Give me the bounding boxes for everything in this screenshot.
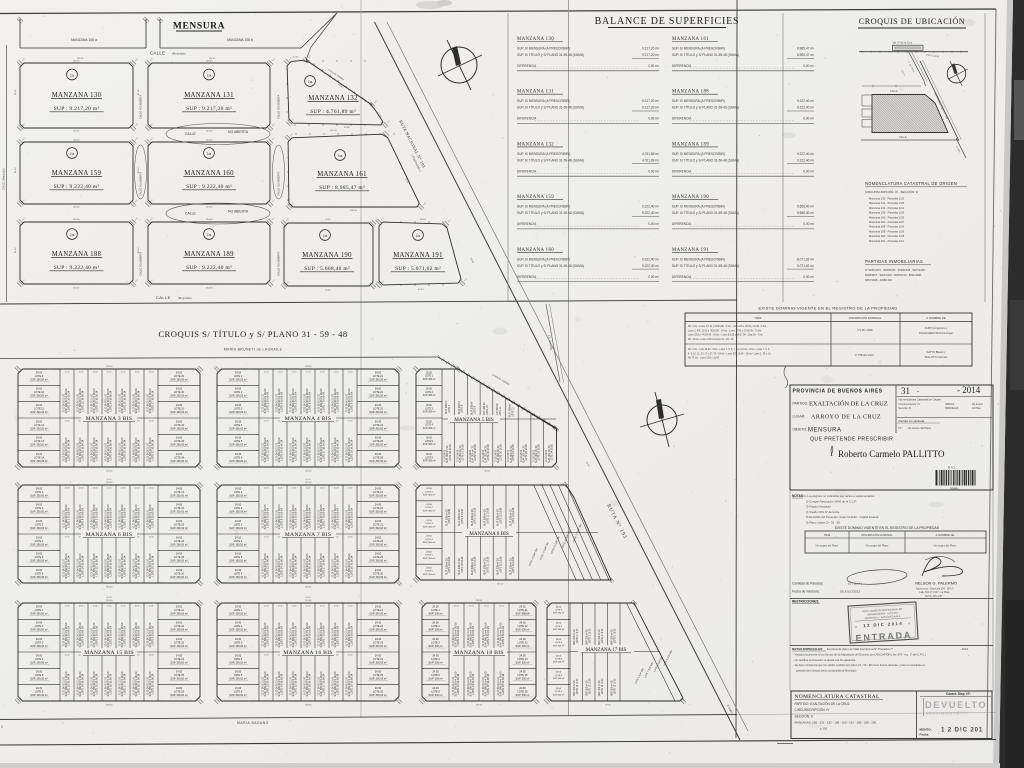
svg-text:9.222,40 m²: 9.222,40 m² [642,257,659,261]
svg-text:CIRCUNSCRIPCIÓN: IV: CIRCUNSCRIPCIÓN: IV [795,707,831,712]
svg-text:SUP. 300,00 m²: SUP. 300,00 m² [369,661,387,664]
svg-text:2) Cumple Resolución 14/90 de: 2) Cumple Resolución 14/90 de la C.C.P. [806,499,857,503]
svg-text:12.00: 12.00 [149,371,154,373]
svg-text:SUP. S/ TÍTULO y S/ PLANO 31-: SUP. S/ TÍTULO y S/ PLANO 31-59-48 (SUMA… [672,106,739,110]
svg-text:SUP 300 m² 20: SUP 300 m² 20 [573,629,576,645]
svg-text:Manzana 190 - Parcelas 1/1: Manzana 190 - Parcelas 1/18 [869,234,905,238]
svg-text:20.00: 20.00 [426,536,432,538]
svg-text:85.06: 85.06 [138,247,140,253]
svg-text:SUP : 9.222,40 m²: SUP : 9.222,40 m² [186,184,232,190]
svg-text:CALLE: CALLE [890,90,898,93]
svg-text:LOTE 11: LOTE 11 [499,406,502,416]
svg-text:SUP. 300,00 m²: SUP. 300,00 m² [30,576,48,579]
svg-text:- Se deja constancia que los s: - Se deja constancia que los saldos cedi… [793,663,925,667]
svg-text:12.00: 12.00 [292,605,297,607]
svg-text:LOTE 1: LOTE 1 [425,376,434,378]
svg-text:124.00: 124.00 [206,288,213,290]
svg-text:LOTE 14 10.00 24: LOTE 14 10.00 24 [279,555,283,576]
svg-text:Lotes 2, 8/9, 12/19 y 74/26: Lotes 2, 8/9, 12/19 y 74/26,98 - 16 bis … [688,329,763,332]
svg-text:SUP. S/ TÍTULO y S/ PLANO 31-: SUP. S/ TÍTULO y S/ PLANO 31-59-48 (SUMA… [672,264,739,268]
svg-text:CROQUIS S/ TÍTULO y S/ PLAN: CROQUIS S/ TÍTULO y S/ PLANO 31 - 59 - 4… [158,329,347,339]
svg-text:LOTE 4 10.00 24: LOTE 4 10.00 24 [279,508,283,528]
svg-text:LOTE 2 10.00: LOTE 2 10.00 [577,628,579,643]
svg-text:5.668,40 m²: 5.668,40 m² [797,211,814,215]
svg-text:LOTE 22 10.00: LOTE 22 10.00 [525,443,528,461]
svg-text:LOTE 21 10.00: LOTE 21 10.00 [512,443,515,461]
svg-text:SUP. 300,00 m²: SUP. 300,00 m² [170,612,188,615]
svg-text:F°138 / 1938: F°138 / 1938 [858,328,873,332]
svg-text:9.222,40 m²: 9.222,40 m² [797,152,814,156]
svg-text:LOTE 25 10.00 24: LOTE 25 10.00 24 [122,439,126,460]
svg-text:5.071,62 m²: 5.071,62 m² [797,257,814,261]
svg-text:DIFERENCIA: DIFERENCIA [517,222,537,226]
svg-text:SUP. 300,00 m²: SUP. 300,00 m² [170,661,188,664]
svg-text:Lotes 2/18 y 74/1/9,49 - 16: Lotes 2/18 y 74/1/9,49 - 16 bis - Lotes … [688,334,763,337]
svg-text:0,00 m²: 0,00 m² [648,275,659,279]
svg-text:DIFERENCIA: DIFERENCIA [672,169,692,173]
svg-text:12.00: 12.00 [149,654,154,656]
svg-text:128.00: 128.00 [106,470,113,472]
svg-text:My 76 bis - Lotes 21/5 y 1: My 76 bis - Lotes 21/5 y 11/14. [688,357,720,360]
svg-text:SUP 300 m² 20: SUP 300 m² 20 [611,629,614,645]
svg-text:SUP. 300,00 m²: SUP. 300,00 m² [229,494,247,497]
svg-text:LOTE 19 10.00: LOTE 19 10.00 [461,556,464,573]
svg-text:SUP. 300,00 m²: SUP. 300,00 m² [30,629,48,632]
svg-text:SUP. 300,00 m²: SUP. 300,00 m² [369,427,387,430]
svg-text:LOTE 7 10.00 24: LOTE 7 10.00 24 [321,392,325,412]
svg-text:EXISTE DOMINIO VIGENTE EN EL R: EXISTE DOMINIO VIGENTE EN EL REGISTRO DE… [835,526,940,530]
svg-text:LOTE 22 10.00: LOTE 22 10.00 [499,556,502,573]
svg-text:OBJETO:: OBJETO: [793,428,808,432]
svg-text:12.00: 12.00 [107,371,112,373]
svg-text:SUP. S/ MENSURA (A PRESCRIBIR: SUP. S/ MENSURA (A PRESCRIBIR) [672,205,725,209]
svg-text:LOTE 19 10.00 24: LOTE 19 10.00 24 [150,555,154,576]
svg-text:8.985,47 m²: 8.985,47 m² [797,47,814,51]
svg-text:LOTE 16 10.00 24: LOTE 16 10.00 24 [307,673,311,694]
svg-text:SUP 300 m²: SUP 300 m² [553,693,565,696]
svg-text:No surgen del Plano: No surgen del Plano [934,545,957,548]
svg-text:LOTE 5 10.00 24: LOTE 5 10.00 24 [293,626,297,646]
svg-text:20.00: 20.00 [426,504,432,506]
svg-text:SECCIÓN: D: SECCIÓN: D [795,713,814,718]
svg-text:12.00: 12.00 [334,371,339,373]
svg-text:20.00: 20.00 [556,639,562,641]
svg-text:LOTE 14 10.00 24: LOTE 14 10.00 24 [471,673,475,694]
svg-text:12.00: 12.00 [264,371,269,373]
svg-text:Agrimensor / Matrícula 104: Agrimensor / Matrícula 104 - CPA V [916,588,954,591]
svg-text:20.00: 20.00 [426,567,432,569]
svg-text:LOTE 16 10.00 24: LOTE 16 10.00 24 [108,673,112,694]
svg-text:12.00: 12.00 [93,371,98,373]
svg-text:LOTE 23 10.00: LOTE 23 10.00 [538,443,541,461]
svg-text:9.222,40 m²: 9.222,40 m² [642,205,659,209]
svg-text:El presente plano se halla ins: El presente plano se halla inscripto al … [827,647,893,651]
svg-text:LOTE 8 10.00 24: LOTE 8 10.00 24 [136,508,140,528]
svg-text:LOTE 15 10.00 24: LOTE 15 10.00 24 [94,673,98,694]
svg-text:DIFERENCIA: DIFERENCIA [517,169,537,173]
svg-text:12.00: 12.00 [334,605,339,607]
svg-text:9.217,20 m²: 9.217,20 m² [642,99,659,103]
svg-text:A NOMBRE DE: A NOMBRE DE [926,316,946,320]
svg-text:PANACHERO ROCCA Ángel: PANACHERO ROCCA Ángel [919,331,953,335]
svg-text:MANZANA 17 BIS: MANZANA 17 BIS [586,648,627,653]
svg-text:LOTE 19 10.00: LOTE 19 10.00 [487,443,490,461]
svg-text:MANZANA 131: MANZANA 131 [184,92,234,99]
svg-text:CALLE NO ABIERTA: CALLE NO ABIERTA [139,94,143,119]
svg-text:12.00: 12.00 [149,420,154,422]
svg-text:1a: 1a [416,233,421,238]
svg-text:124.00: 124.00 [206,61,213,63]
svg-text:124.00: 124.00 [206,219,213,221]
svg-text:124.00: 124.00 [73,61,80,63]
svg-text:LOTE 3 10.00 24: LOTE 3 10.00 24 [265,626,269,646]
svg-text:Fecha de mensura:: Fecha de mensura: [792,590,820,594]
svg-text:12.00: 12.00 [499,605,504,607]
svg-text:SUP. S/ MENSURA (A PRESCRIBIR: SUP. S/ MENSURA (A PRESCRIBIR) [517,257,570,261]
svg-text:LOTE 1: LOTE 1 [555,610,563,612]
svg-text:Manzana 161 - Parcelas 1/2: Manzana 161 - Parcelas 1/27 [869,220,905,224]
svg-text:PARTIDO:: PARTIDO: [793,402,809,406]
svg-text:SUP. S/ TÍTULO y S/ PLANO 31-: SUP. S/ TÍTULO y S/ PLANO 31-59-48 (SUMA… [517,211,584,215]
svg-text:12.00: 12.00 [292,487,297,489]
svg-text:8.985,47 m²: 8.985,47 m² [797,53,814,57]
svg-text:LOTE 13 10.00 24: LOTE 13 10.00 24 [265,439,269,460]
svg-text:4) Visado CPA N° de: 4) Visado CPA N° de fecha [806,510,840,514]
svg-text:SUP : 5.071,62 m²: SUP : 5.071,62 m² [395,266,441,272]
svg-text:LOTE 15 10.00 24: LOTE 15 10.00 24 [94,555,98,576]
svg-text:20.00: 20.00 [106,597,112,599]
svg-text:EXISTE DOMINIO VIGENTE EN: EXISTE DOMINIO VIGENTE EN EL REGISTRO DE… [758,306,897,311]
svg-text:SUP. 300,00 m²: SUP. 300,00 m² [369,444,387,447]
svg-text:LOTE 13 10.00 24: LOTE 13 10.00 24 [265,673,269,694]
svg-text:20.00: 20.00 [556,688,562,690]
svg-text:LOTE 20 10.00: LOTE 20 10.00 [474,556,477,573]
svg-text:LOTE 3 10.00 24: LOTE 3 10.00 24 [265,508,269,528]
svg-text:SUP. S/ TÍTULO y S/ PLANO 31-: SUP. S/ TÍTULO y S/ PLANO 31-59-48 (SUMA… [517,264,584,268]
svg-text:SUP. 300,00 m²: SUP. 300,00 m² [229,460,247,463]
svg-text:SUP. 300,00 m²: SUP. 300,00 m² [229,411,247,414]
svg-text:SUP. 300 m²: SUP. 300 m² [429,645,443,648]
svg-text:1a: 1a [207,151,212,156]
svg-text:SUP. 300 m²: SUP. 300 m² [516,661,530,664]
svg-text:LOTE 8 10.00 24: LOTE 8 10.00 24 [335,392,339,412]
svg-text:LOTE 22 10.00 24: LOTE 22 10.00 24 [80,439,84,460]
svg-text:SUP. S/ TÍTULO y S/ PLANO 31-: SUP. S/ TÍTULO y S/ PLANO 31-59-48 (SUMA… [517,158,584,162]
svg-text:Manzana 189 - Parcelas 1/2: Manzana 189 - Parcelas 1/26 [869,229,905,233]
svg-text:SUP. 300,00 m²: SUP. 300,00 m² [30,395,48,398]
svg-text:No surgen del Plano: No surgen del Plano [816,545,839,548]
svg-text:03/JULIO/2013: 03/JULIO/2013 [840,590,861,594]
svg-text:Va anexo: Va anexo [972,402,983,406]
svg-text:SUP. S/ TÍTULO y S/ PLANO 31-: SUP. S/ TÍTULO y S/ PLANO 31-59-48 (SUMA… [672,211,739,215]
svg-text:SUP. S/ TÍTULO y S/ PLANO 31-: SUP. S/ TÍTULO y S/ PLANO 31-59-48 (SUMA… [517,53,584,57]
svg-text:(Mejorada): (Mejorada) [172,51,186,55]
svg-text:0,00 m²: 0,00 m² [803,169,814,173]
svg-text:LOTE 13 10.00: LOTE 13 10.00 [512,507,515,524]
svg-text:SUP. 300,00 m²: SUP. 300,00 m² [30,527,48,530]
svg-text:B 4 2: B 4 2 [948,466,955,470]
svg-text:LOTE 14 10.00 24: LOTE 14 10.00 24 [108,390,112,411]
svg-text:F°708 año 1947.: F°708 año 1947. [855,353,874,357]
svg-text:SUP. 300,00 m²: SUP. 300,00 m² [170,444,188,447]
svg-text:85.06: 85.06 [138,89,140,95]
svg-text:LOTE 15 10.00 24: LOTE 15 10.00 24 [293,673,297,694]
svg-text:LOTE 16 10.00 24: LOTE 16 10.00 24 [108,555,112,576]
svg-text:12.00: 12.00 [135,371,140,373]
svg-text:- 2014: - 2014 [957,385,981,395]
svg-text:1a: 1a [207,232,212,237]
svg-text:0,00 m²: 0,00 m² [648,222,659,226]
svg-text:LUGAR:: LUGAR: [793,415,806,419]
svg-text:10 ( Diez ): 10 ( Diez ) [848,582,862,586]
svg-text:1a: 1a [308,79,313,84]
svg-text:RESTRICCIONES:: RESTRICCIONES: [792,600,819,604]
svg-text:(Mejorada): (Mejorada) [178,296,192,300]
svg-text:NOTAS ESPECIALES:: NOTAS ESPECIALES: [792,647,823,651]
svg-text:Nomenclatura Catastral de Orig: Nomenclatura Catastral de Origen [899,398,942,402]
svg-text:12.00: 12.00 [334,487,339,489]
svg-text:Caract. Disp. N°:: Caract. Disp. N°: [946,692,971,696]
svg-text:LOTE 2: LOTE 2 [555,626,563,628]
svg-text:Manzana 191 - Parcelas 1/1: Manzana 191 - Parcelas 1/11 [869,239,904,243]
svg-text:959841: 959841 [950,487,959,491]
svg-text:LOTE 6: LOTE 6 [425,571,433,573]
svg-text:87.00: 87.00 [605,705,611,707]
svg-text:SUP 300 m²: SUP 300 m² [553,644,565,647]
svg-text:MANZANA 4 BIS: MANZANA 4 BIS [285,416,331,422]
svg-text:Partida Inmobiliaria: Partida Inmobiliaria [899,419,925,423]
svg-text:LOTE 11 10.00: LOTE 11 10.00 [487,507,490,524]
svg-text:4.761,89 m²: 4.761,89 m² [642,158,659,162]
svg-text:12.00: 12.00 [65,420,70,422]
svg-text:Sección: D: Sección: D [899,406,912,410]
svg-text:20.00: 20.00 [305,597,311,599]
svg-text:SUP. 300 m²: SUP. 300 m² [516,694,530,697]
svg-text:Bo. A° de la Cruz: Bo. A° de la Cruz [893,42,913,45]
svg-text:20.00: 20.00 [426,372,432,374]
svg-text:y 191: y 191 [820,726,828,730]
svg-text:MONTO:: MONTO: [920,728,932,732]
svg-text:LOTE 4 10.00 24: LOTE 4 10.00 24 [279,392,283,412]
svg-text:0,00 m²: 0,00 m² [803,222,814,226]
svg-text:LOTE 16 10.00 24: LOTE 16 10.00 24 [307,439,311,460]
svg-text:1a: 1a [70,72,75,77]
svg-text:124.00: 124.00 [73,219,80,221]
svg-text:LOTE 20 10.00: LOTE 20 10.00 [500,443,503,461]
svg-text:128.00: 128.00 [476,704,483,706]
svg-text:12.00: 12.00 [149,536,154,538]
svg-text:LOTE 21 10.00: LOTE 21 10.00 [487,556,490,573]
svg-text:NO ABIERTA: NO ABIERTA [228,210,249,214]
svg-text:CALLE NO ABIERTA: CALLE NO ABIERTA [139,251,143,276]
svg-text:SUP. 300,00 m²: SUP. 300,00 m² [170,427,188,430]
svg-text:SUP. 300,00 m²: SUP. 300,00 m² [229,678,247,681]
svg-text:SUP. 300,00 m²: SUP. 300,00 m² [369,645,387,648]
svg-text:LOTE 16 10.00 24: LOTE 16 10.00 24 [136,390,140,411]
svg-text:SUP : 4.761,89 m²: SUP : 4.761,89 m² [310,109,356,115]
svg-text:12.00: 12.00 [65,654,70,656]
svg-text:0,00 m²: 0,00 m² [648,169,659,173]
svg-text:12.00: 12.00 [107,605,112,607]
svg-text:SUP : 9.217,20 m²: SUP : 9.217,20 m² [54,106,100,112]
svg-text:LOTE 18 10.00: LOTE 18 10.00 [474,443,477,461]
svg-text:12.00: 12.00 [348,487,353,489]
svg-text:CALLE: CALLE [185,132,196,136]
svg-text:(0221) 425-1157: (0221) 425-1157 [925,595,943,598]
svg-text:128.00: 128.00 [106,704,113,706]
svg-text:SUP. S/ TÍTULO y S/ PLANO 31-: SUP. S/ TÍTULO y S/ PLANO 31-59-48 (SUMA… [517,106,584,110]
svg-text:LOTE 4 10.00 24: LOTE 4 10.00 24 [80,626,84,646]
svg-text:LOTE 6: LOTE 6 [425,457,434,459]
svg-text:9.222,40 m²: 9.222,40 m² [642,211,659,215]
svg-text:LOTE 8 10.00: LOTE 8 10.00 [448,508,451,524]
svg-text:SUP. 300,00 m²: SUP. 300,00 m² [369,678,387,681]
svg-text:CALLE: CALLE [150,51,165,56]
svg-text:ITEM: ITEM [824,533,831,537]
svg-text:VARIAS: VARIAS [945,402,955,406]
svg-text:SUP 300 m² 20: SUP 300 m² 20 [586,629,589,645]
svg-text:12.00: 12.00 [121,605,126,607]
svg-text:SUP. 300 m²: SUP. 300 m² [423,427,436,430]
svg-text:12.00: 12.00 [264,536,269,538]
svg-text:LOTE 17 10.00 24: LOTE 17 10.00 24 [321,555,325,576]
svg-text:12.00: 12.00 [135,605,140,607]
svg-text:SUP. 300,00 m²: SUP. 300,00 m² [229,612,247,615]
svg-text:9.222,40 m²: 9.222,40 m² [642,264,659,268]
svg-text:LOTE 23 10.00 24: LOTE 23 10.00 24 [94,439,98,460]
svg-text:128.00: 128.00 [305,482,312,484]
svg-text:LOTE 14 10.00 24: LOTE 14 10.00 24 [279,439,283,460]
svg-text:LOTE 14 10.00: LOTE 14 10.00 [602,678,604,694]
svg-text:SUP. 300 m²: SUP. 300 m² [429,694,443,697]
svg-text:LOTE 5 10.00 24: LOTE 5 10.00 24 [486,626,490,646]
svg-text:SUP : 9.222,40 m²: SUP : 9.222,40 m² [186,265,232,271]
svg-text:Mz. 6 bis - Lote 18,36 - 9 bi: Mz. 6 bis - Lote 18,36 - 9 bis - Lotes 1… [688,348,770,351]
svg-text:SUP. 300,00 m²: SUP. 300,00 m² [369,527,387,530]
svg-text:LOTE 6: LOTE 6 [555,691,563,693]
svg-text:SUP. 300,00 m²: SUP. 300,00 m² [170,411,188,414]
svg-text:20.00: 20.00 [556,672,562,674]
svg-text:20.00: 20.00 [426,389,432,391]
svg-text:6) Plano origen: D - 31 - 38: 6) Plano origen: D - 31 - 38 [806,521,840,525]
svg-text:LOTE 13 10.00 24: LOTE 13 10.00 24 [94,390,98,411]
svg-text:SUP. 300 m²: SUP. 300 m² [423,573,436,576]
svg-text:N°:: N°: [899,426,903,430]
svg-text:SUP. 300,00 m²: SUP. 300,00 m² [30,560,48,563]
svg-text:12.00: 12.00 [278,487,283,489]
svg-text:NOTAS:: NOTAS: [792,494,804,498]
svg-text:SUP. 300,00 m²: SUP. 300,00 m² [170,494,188,497]
svg-text:SUP. S/ MENSURA (A PRESCRIBIR: SUP. S/ MENSURA (A PRESCRIBIR) [517,205,570,209]
svg-text:SUP. 300,00 m²: SUP. 300,00 m² [229,395,247,398]
svg-text:SUP. 300,00 m²: SUP. 300,00 m² [369,511,387,514]
svg-text:20.00: 20.00 [556,623,562,625]
svg-text:DIFERENCIA: DIFERENCIA [517,64,537,68]
svg-text:31: 31 [901,386,910,396]
svg-text:LOTE 17 10.00: LOTE 17 10.00 [461,443,464,461]
svg-text:124.00: 124.00 [206,140,213,142]
svg-text:12.00: 12.00 [306,487,311,489]
svg-text:128.00: 128.00 [106,586,113,588]
svg-text:44 Plan: 44 Plan [972,406,981,410]
svg-text:20.00: 20.00 [426,552,432,554]
svg-text:12.00: 12.00 [264,654,269,656]
svg-text:12.00: 12.00 [65,536,70,538]
svg-text:LOTE 15 10.00: LOTE 15 10.00 [615,678,617,694]
svg-text:Fecha:: Fecha: [920,733,930,737]
svg-text:LOTE 3: LOTE 3 [425,408,434,410]
svg-text:SUP. 300 m²: SUP. 300 m² [423,525,436,528]
svg-text:1a: 1a [70,151,75,156]
svg-text:SUP. 300,00 m²: SUP. 300,00 m² [229,511,247,514]
svg-text:LOTE 1: LOTE 1 [425,491,433,493]
svg-text:SUP. 300,00 m²: SUP. 300,00 m² [229,527,247,530]
svg-text:Mz. 4 bis - Lotes 3/7,31 y 50/: Mz. 4 bis - Lotes 3/7,31 y 50/36,90 - 5 … [688,325,768,328]
svg-text:SUP. 300,00 m²: SUP. 300,00 m² [30,645,48,648]
svg-text:LOTE 5: LOTE 5 [555,675,563,677]
svg-text:- 2014: - 2014 [960,647,968,651]
svg-text:9.217,20 m²: 9.217,20 m² [642,47,659,51]
svg-text:SUP. 300,00 m²: SUP. 300,00 m² [229,444,247,447]
svg-text:12.00: 12.00 [264,420,269,422]
svg-text:124.00: 124.00 [73,131,80,133]
svg-text:LOTE 4 10.00 24: LOTE 4 10.00 24 [279,626,283,646]
svg-text:MANZANA 160: MANZANA 160 [184,170,234,177]
svg-text:MANZANA 5 BIS: MANZANA 5 BIS [454,417,494,423]
svg-text:SUP. 300,00 m²: SUP. 300,00 m² [369,576,387,579]
svg-text:65.88: 65.88 [344,127,350,129]
svg-text:LOTE 4: LOTE 4 [425,425,434,427]
svg-text:LOTE 12 10.00: LOTE 12 10.00 [577,678,579,694]
svg-text:128.00: 128.00 [305,704,312,706]
svg-text:N° 9181/4270 - 9265/5295 -: N° 9181/4270 - 9265/5295 - 9038/2348 - 9… [865,268,926,272]
svg-text:LOTE 7 10.00 24: LOTE 7 10.00 24 [122,626,126,646]
svg-text:12.00: 12.00 [107,487,112,489]
svg-text:PARCELAS: PARCELAS [945,406,959,410]
svg-text:LOTE 17 10.00 24: LOTE 17 10.00 24 [122,673,126,694]
svg-text:14.00: 14.00 [325,290,331,292]
svg-text:LOTE 3 10.00 24: LOTE 3 10.00 24 [66,508,70,528]
svg-text:CALLE: CALLE [185,212,196,216]
svg-text:CALLE: CALLE [899,136,907,139]
svg-text:LOTE 19 10.00 24: LOTE 19 10.00 24 [349,439,353,460]
svg-text:LOTE 6 10.00 24: LOTE 6 10.00 24 [307,626,311,646]
svg-text:CURTO Argentino y: CURTO Argentino y [925,326,949,330]
svg-text:SUP. 300,00 m²: SUP. 300,00 m² [170,511,188,514]
svg-text:128.00: 128.00 [106,482,113,484]
svg-text:12.00: 12.00 [121,371,126,373]
svg-text:SUP. 300,00 m²: SUP. 300,00 m² [170,378,188,381]
svg-text:MANZANA 159: MANZANA 159 [52,170,102,177]
svg-text:INSCRIPCIÓN DOMINIAL: INSCRIPCIÓN DOMINIAL [849,315,882,320]
svg-text:MARIA BADANO: MARIA BADANO [237,721,269,725]
svg-text:LOTE 12 10.00 24: LOTE 12 10.00 24 [80,390,84,411]
svg-text:LOTE 5: LOTE 5 [425,441,434,443]
svg-text:LOTE 18 10.00 24: LOTE 18 10.00 24 [335,673,339,694]
svg-text:20.00: 20.00 [426,454,432,456]
svg-text:LOTE 11 10.00 24: LOTE 11 10.00 24 [66,390,70,411]
svg-text:CALLE NO ABIERTA: CALLE NO ABIERTA [139,171,143,196]
svg-text:138.00: 138.00 [350,210,357,212]
svg-text:CALLE NO ABIERTA: CALLE NO ABIERTA [277,94,281,119]
svg-text:SUP. 300,00 m²: SUP. 300,00 m² [369,543,387,546]
svg-text:Manzana 160 - Parcelas 1/2: Manzana 160 - Parcelas 1/26 [869,215,905,219]
svg-text:62.43: 62.43 [418,289,424,291]
svg-text:12/13/14: 12/13/14 [956,711,969,715]
svg-text:74.00: 74.00 [325,219,331,221]
svg-text:SUP. 300,00 m²: SUP. 300,00 m² [30,427,48,430]
svg-text:NO ABIERTA: NO ABIERTA [228,130,249,134]
